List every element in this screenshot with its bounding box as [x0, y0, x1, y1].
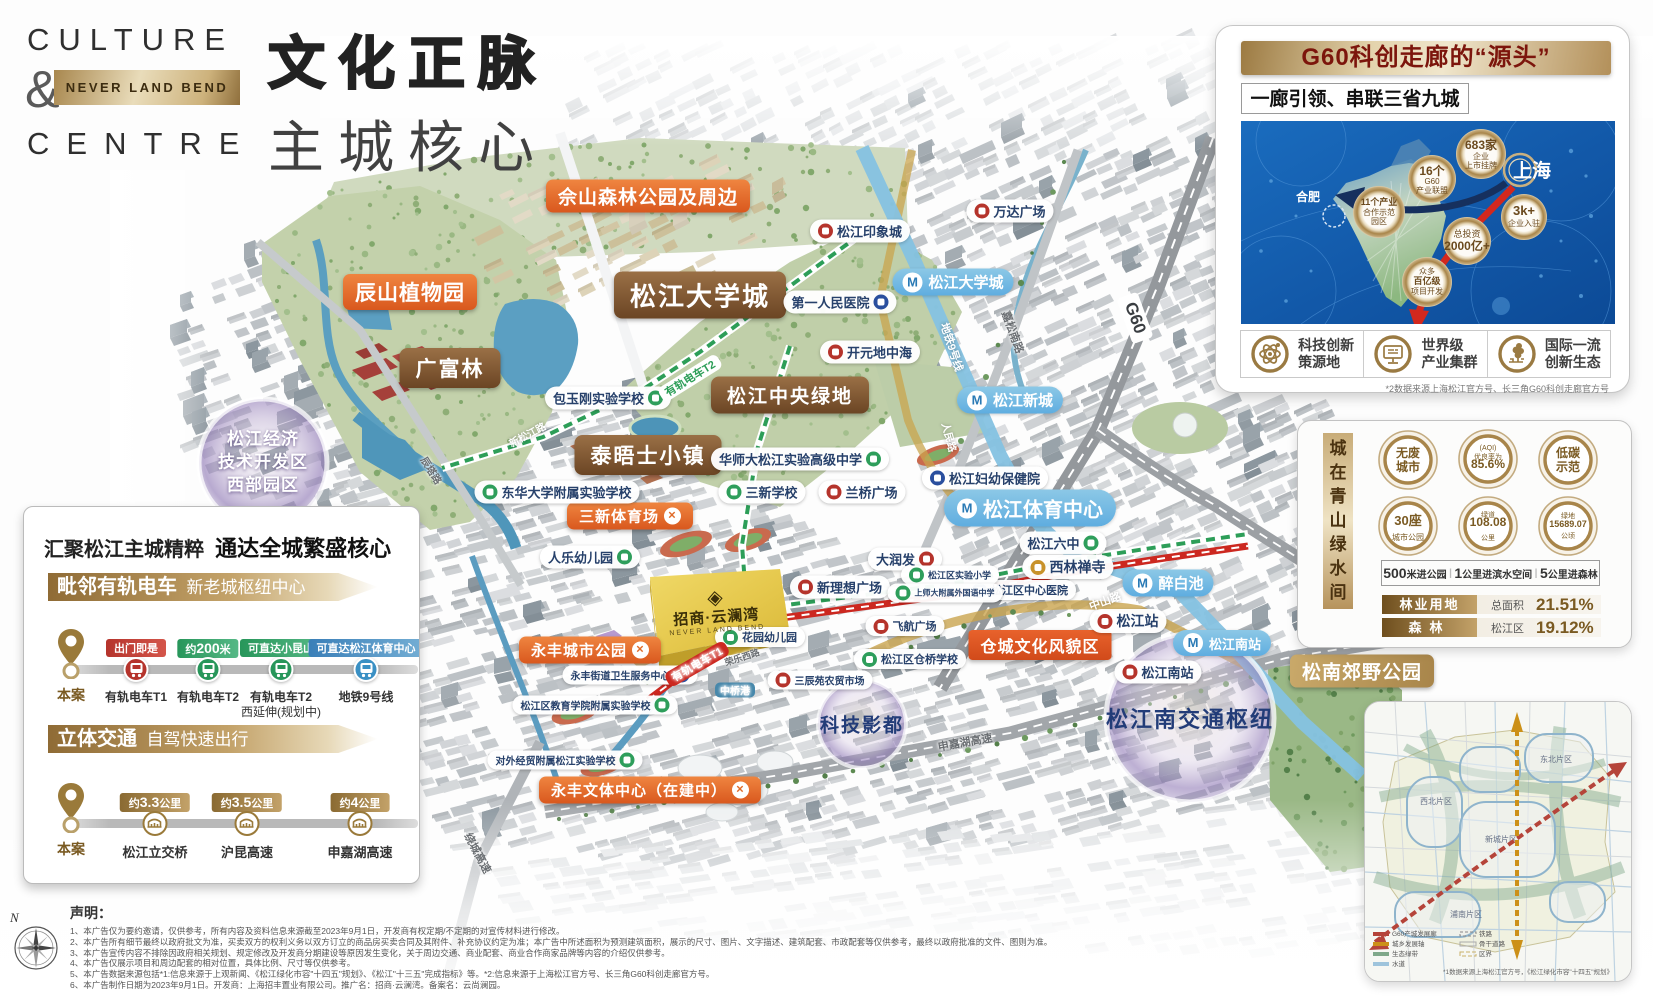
svg-text:企业: 企业	[1473, 151, 1489, 161]
svg-text:众多: 众多	[1419, 266, 1435, 276]
svg-text:(AQI): (AQI)	[1480, 445, 1497, 452]
svg-text:低碳: 低碳	[1555, 445, 1581, 460]
svg-text:百亿级: 百亿级	[1413, 275, 1441, 286]
svg-text:683家: 683家	[1465, 137, 1498, 152]
svg-text:2000亿+: 2000亿+	[1444, 238, 1490, 253]
svg-text:生态绿带: 生态绿带	[1392, 949, 1419, 958]
svg-text:108.08: 108.08	[1470, 515, 1507, 529]
svg-text:公里: 公里	[1481, 534, 1495, 542]
svg-text:G60产城发展廊: G60产城发展廊	[1392, 929, 1437, 938]
svg-text:*1数据来源上海松江官方号，《松江绿化市容"十四五"规划》: *1数据来源上海松江官方号，《松江绿化市容"十四五"规划》	[1443, 967, 1613, 976]
svg-text:3k+: 3k+	[1513, 203, 1535, 218]
svg-text:城乡发展轴: 城乡发展轴	[1392, 939, 1425, 948]
svg-text:合作示范: 合作示范	[1363, 207, 1395, 217]
svg-text:合肥: 合肥	[1296, 189, 1320, 204]
svg-text:85.6%: 85.6%	[1471, 457, 1505, 471]
svg-text:16个: 16个	[1419, 163, 1445, 178]
svg-text:15689.07: 15689.07	[1549, 519, 1587, 529]
svg-text:城市: 城市	[1396, 459, 1420, 474]
svg-text:产业联盟: 产业联盟	[1416, 185, 1448, 195]
svg-text:上海: 上海	[1513, 159, 1551, 182]
svg-text:项目开发: 项目开发	[1411, 286, 1443, 296]
svg-text:东北片区: 东北片区	[1540, 754, 1572, 764]
svg-text:N: N	[9, 910, 20, 925]
svg-text:城市公园: 城市公园	[1392, 532, 1424, 542]
svg-text:铁路: 铁路	[1479, 929, 1493, 938]
svg-text:上市挂牌: 上市挂牌	[1465, 160, 1497, 170]
svg-text:G60: G60	[1424, 177, 1440, 186]
svg-text:骨干道路: 骨干道路	[1479, 939, 1506, 948]
svg-text:水道: 水道	[1392, 959, 1406, 968]
svg-text:公顷: 公顷	[1561, 532, 1575, 540]
svg-text:示范: 示范	[1555, 459, 1580, 474]
svg-text:企业入驻: 企业入驻	[1508, 218, 1540, 228]
svg-text:11个产业: 11个产业	[1361, 196, 1398, 207]
svg-text:总投资: 总投资	[1453, 228, 1480, 239]
svg-text:无废: 无废	[1395, 445, 1420, 460]
svg-text:30座: 30座	[1394, 513, 1421, 528]
svg-text:区界: 区界	[1479, 950, 1493, 958]
svg-text:西北片区: 西北片区	[1420, 796, 1452, 806]
svg-text:浦南片区: 浦南片区	[1450, 909, 1482, 919]
svg-text:园区: 园区	[1371, 217, 1387, 226]
